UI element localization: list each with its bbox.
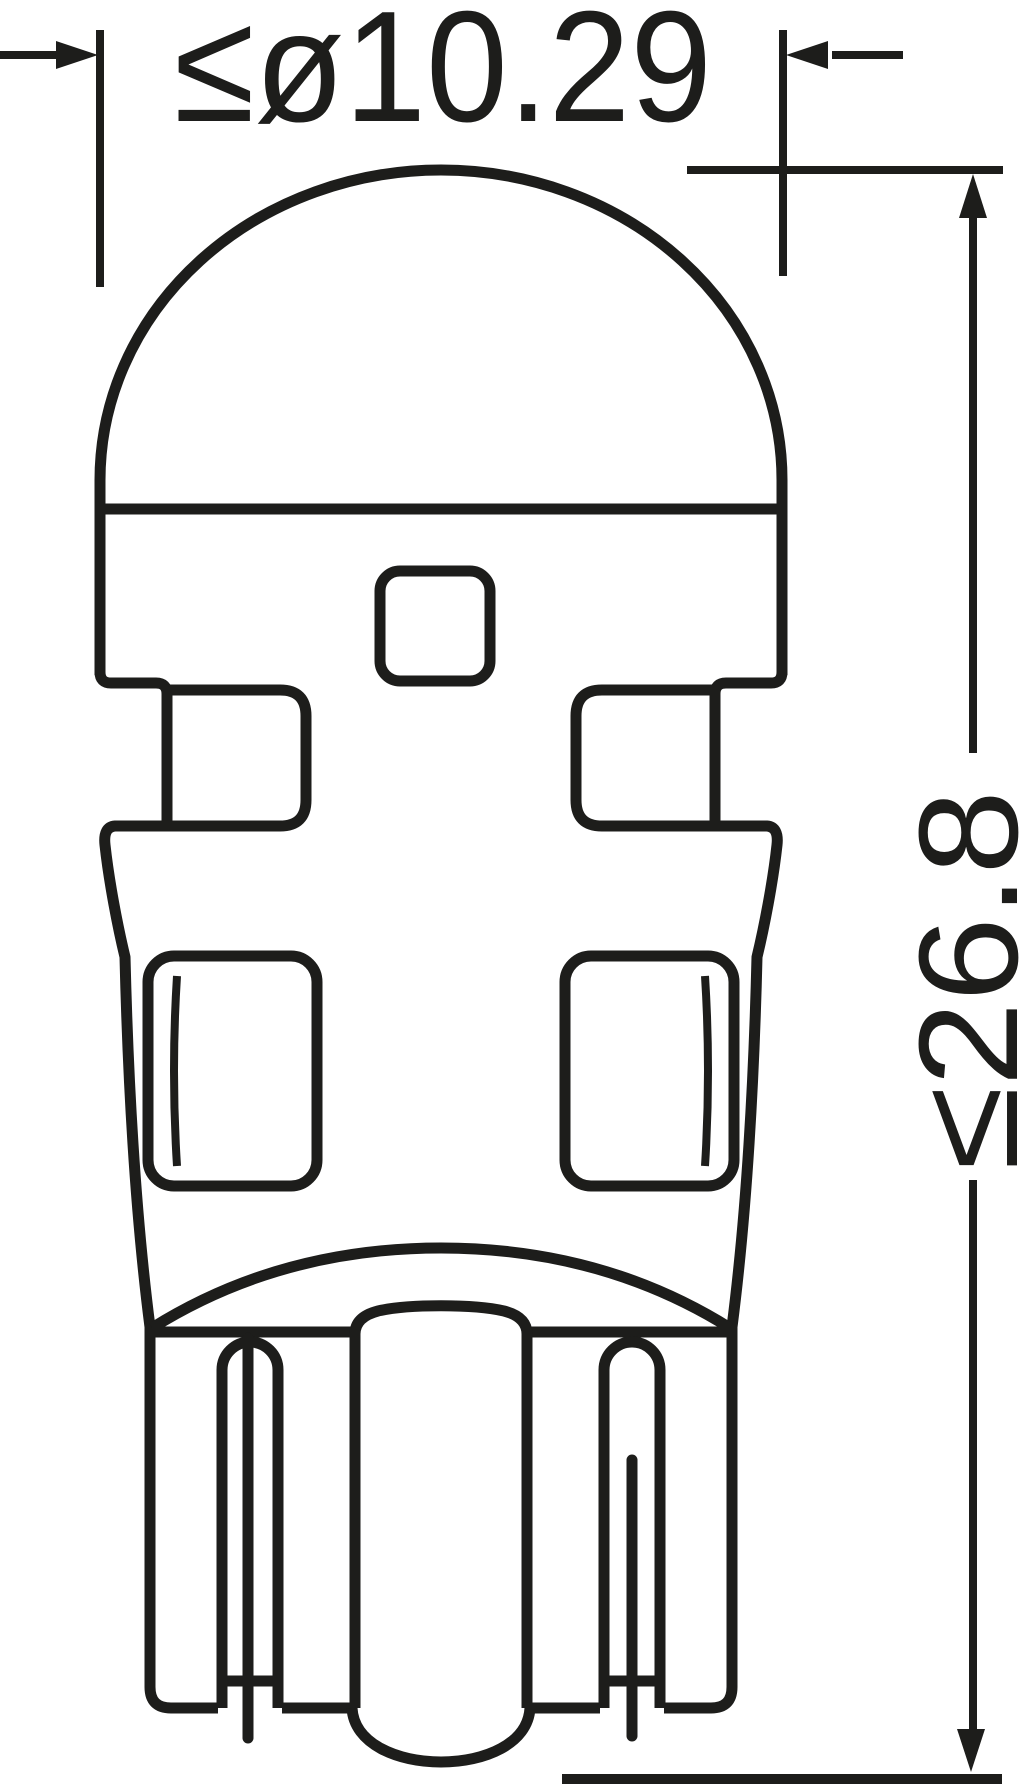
diameter-dimension-label: ≤ø10.29	[174, 0, 712, 155]
height-arrowhead-up	[959, 174, 987, 218]
glass-top-curve	[152, 1248, 730, 1328]
diameter-arrowhead-left	[56, 41, 98, 69]
alignment-hole	[380, 571, 490, 681]
center-channel	[355, 1306, 527, 1708]
left-shoulder-and-neck	[100, 666, 167, 826]
bulb-outline	[100, 170, 782, 1762]
led-chip-right-inner-edge	[705, 976, 708, 1166]
left-side-tab	[167, 690, 306, 826]
bulb-technical-drawing: ≤ø10.29 ≤26.8	[0, 0, 1024, 1784]
height-dimension-label: ≤26.8	[889, 790, 1024, 1170]
right-shoulder-and-neck	[715, 666, 782, 826]
bulb-dome-outline	[100, 170, 782, 675]
diameter-arrowhead-right	[786, 41, 828, 69]
bottom-tip-bump	[352, 1708, 530, 1762]
led-chip-left-inner-edge	[174, 976, 177, 1166]
right-side-tab	[576, 690, 715, 826]
technical-drawing-page: ≤ø10.29 ≤26.8	[0, 0, 1024, 1784]
height-arrowhead-down	[957, 1729, 985, 1772]
